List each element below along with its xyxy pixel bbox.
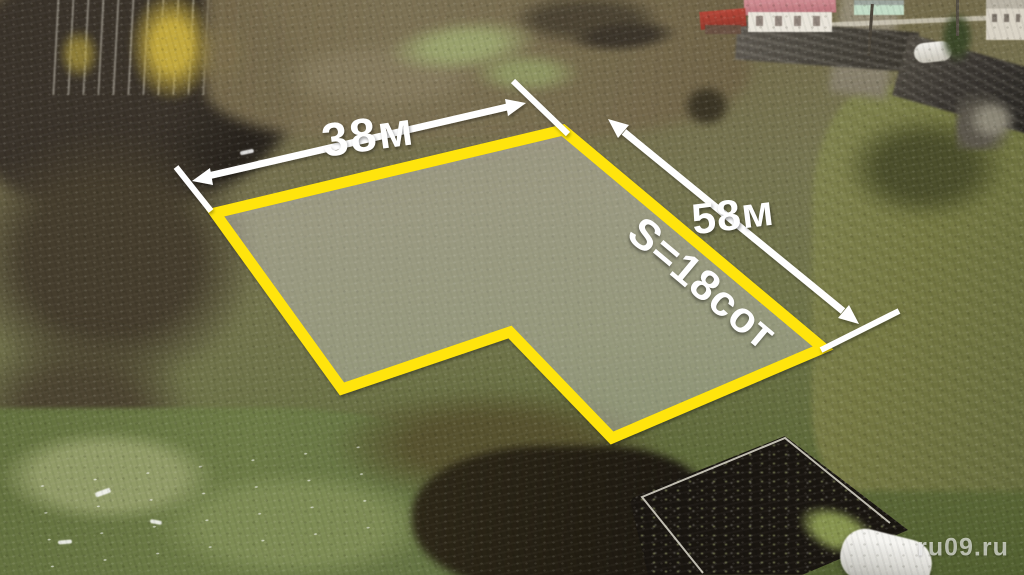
annotation-overlay (0, 0, 1024, 575)
arrowhead (192, 168, 213, 185)
aerial-photo: 38м 58м S=18сот ru09.ru (0, 0, 1024, 575)
garden-fence-line (642, 438, 890, 573)
dim-tick-top (513, 81, 568, 134)
dim-tick-right (821, 311, 899, 350)
length-dimension-label: 58м (689, 187, 777, 246)
arrowhead (505, 99, 526, 116)
site-watermark: ru09.ru (917, 534, 1009, 563)
